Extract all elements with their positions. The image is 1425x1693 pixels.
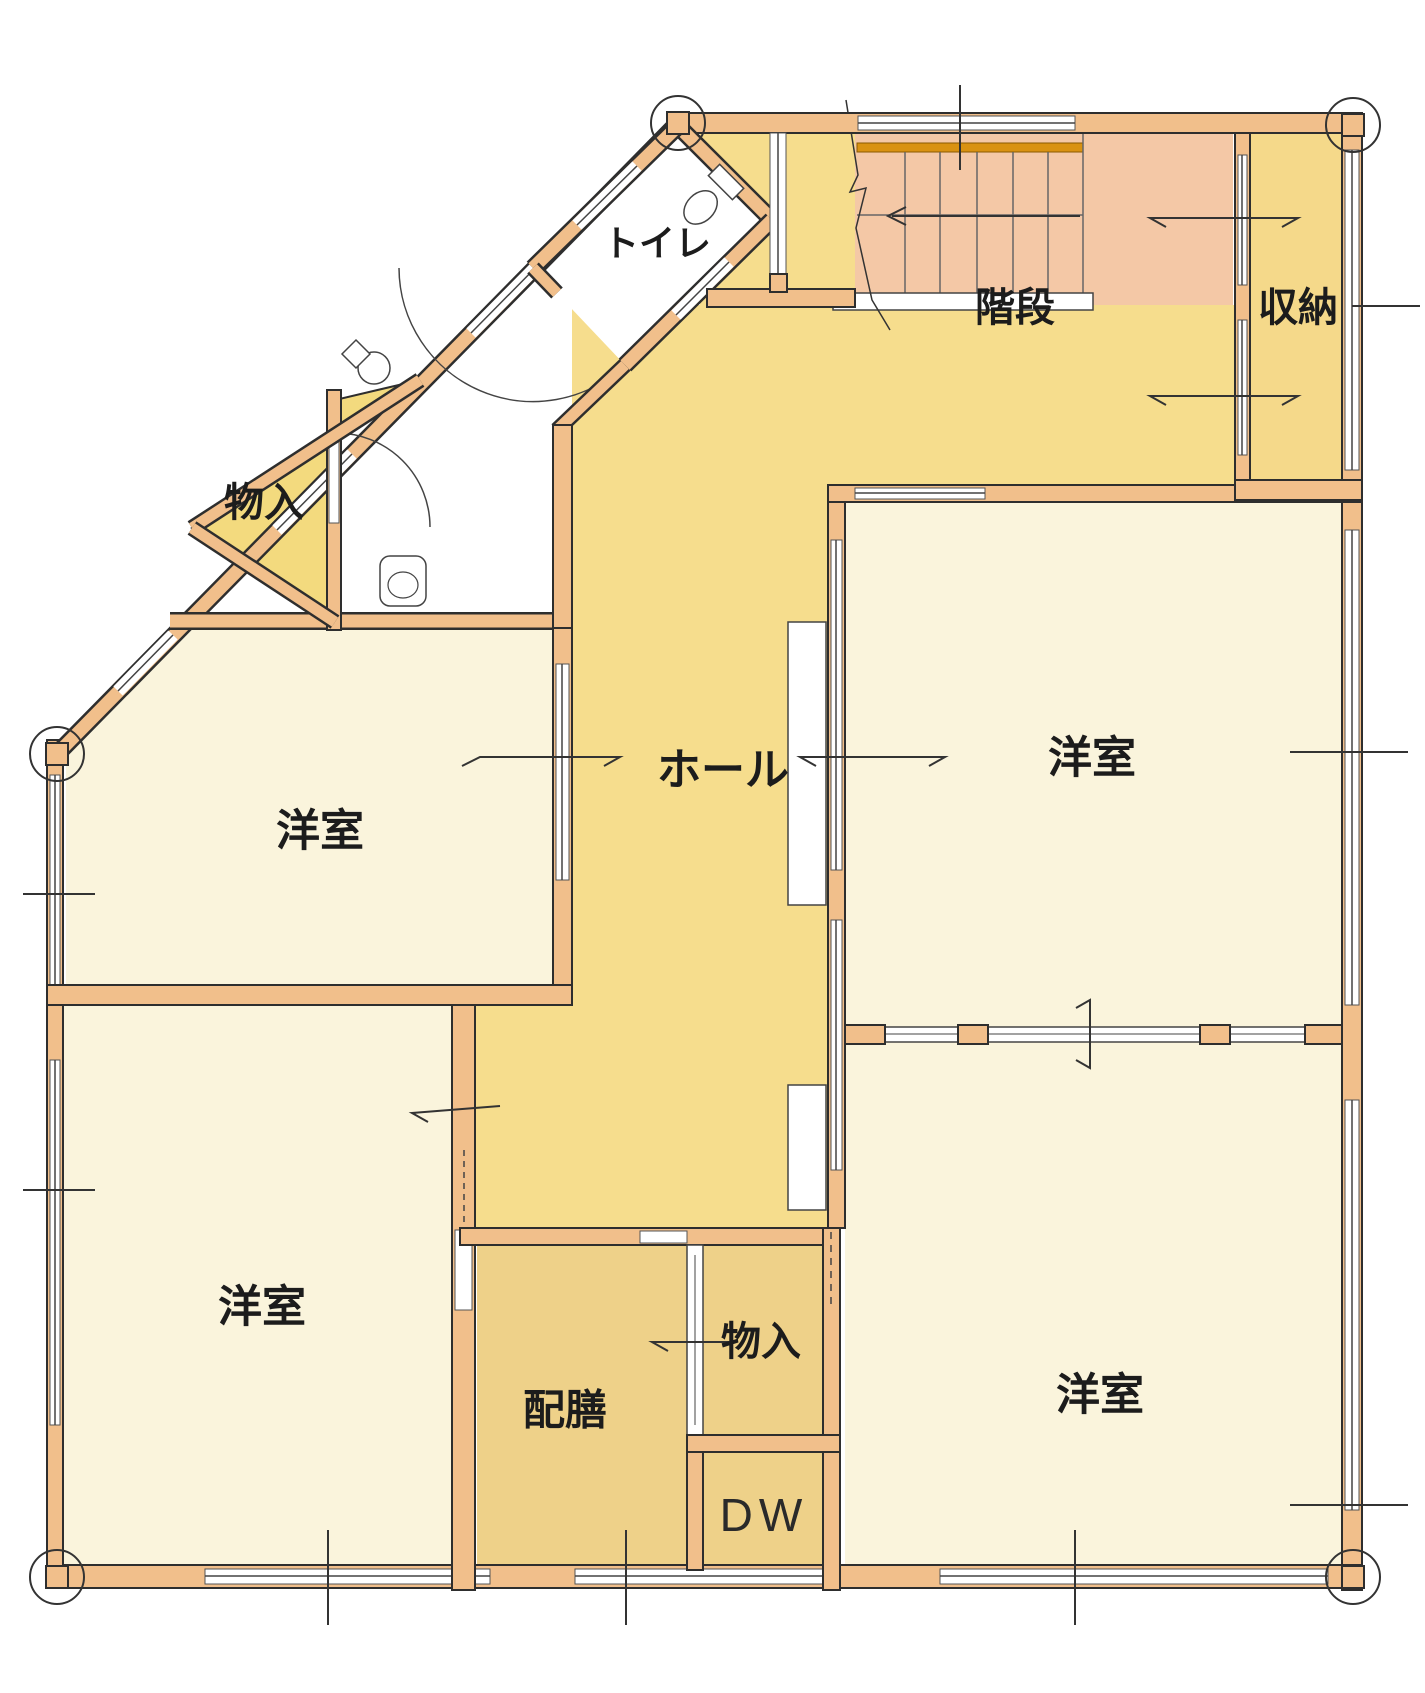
floor-plan-canvas: トイレ 階段 収納 物入 ホール 洋室 洋室 洋室 洋室 配膳 物入 DW: [0, 0, 1425, 1693]
room-label-western-middle-left: 洋室: [276, 806, 364, 856]
room-label-western-upper-right: 洋室: [1048, 733, 1136, 783]
wall-hall-left: [553, 628, 572, 985]
washroom-toilet-icon: [380, 556, 426, 606]
wall-pantry-top: [460, 1228, 840, 1245]
partition-right-rooms: [845, 1025, 1342, 1044]
wash-basin-icon: [342, 340, 390, 384]
room-label-dumbwaiter: DW: [720, 1489, 809, 1541]
window-bottom: [205, 1569, 1328, 1584]
room-label-stairs: 階段: [975, 286, 1055, 330]
western-room-lower-right-floor: [845, 1042, 1342, 1565]
stair-accent-bar: [857, 143, 1083, 152]
room-label-western-lower-right: 洋室: [1056, 1370, 1144, 1420]
room-label-storage: 収納: [1258, 286, 1338, 330]
sliding-door-leaf-lower: [788, 1085, 826, 1210]
room-label-toilet: トイレ: [603, 223, 711, 264]
wall-closet-dw-mid: [687, 1435, 840, 1452]
wall-mid-left-row: [47, 985, 572, 1005]
window-right: [1345, 150, 1359, 1510]
window-toilet-east: [770, 133, 787, 292]
hall-floor-upper-mid: [572, 307, 785, 630]
room-label-closet-bottom: 物入: [721, 1320, 801, 1364]
wall-closet-right: [823, 1228, 840, 1590]
room-label-closet-upper-left: 物入: [224, 481, 304, 525]
sliding-door-leaf-upper: [788, 622, 826, 905]
floor-plan-drawing: トイレ 階段 収納 物入 ホール 洋室 洋室 洋室 洋室 配膳 物入 DW: [0, 0, 1425, 1693]
room-label-hall: ホール: [657, 746, 789, 795]
window-left: [50, 775, 60, 1425]
room-label-pantry: 配膳: [523, 1387, 607, 1434]
wall-lower-left-room-right: [452, 1005, 475, 1590]
room-label-western-lower-left: 洋室: [218, 1282, 306, 1332]
wall-dw-left: [687, 1452, 703, 1570]
